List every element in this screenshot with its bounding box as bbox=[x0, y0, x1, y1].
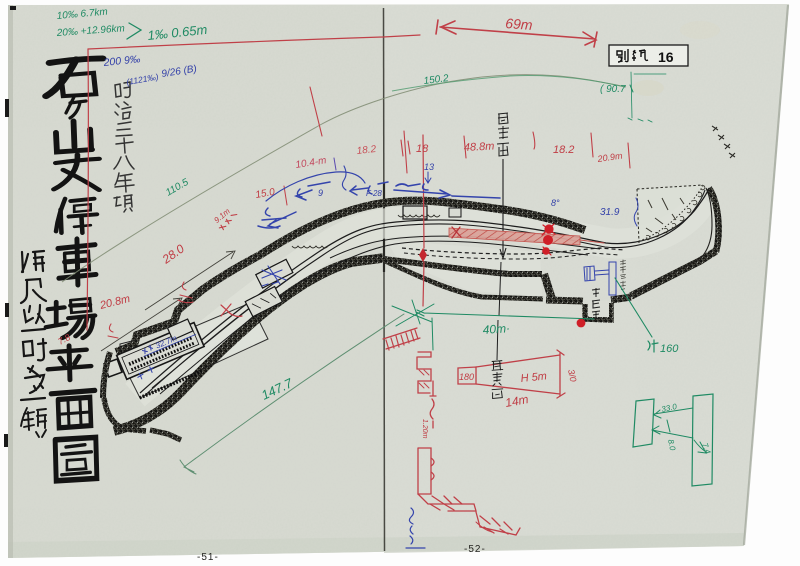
svg-text:40m·: 40m· bbox=[482, 321, 510, 337]
svg-text:-51-: -51- bbox=[197, 552, 219, 563]
svg-text:( 90.7: ( 90.7 bbox=[600, 84, 626, 95]
svg-text:18.2: 18.2 bbox=[553, 144, 574, 156]
svg-text:31.9: 31.9 bbox=[600, 207, 620, 218]
svg-text:16: 16 bbox=[658, 49, 674, 65]
svg-text:9: 9 bbox=[318, 188, 323, 198]
svg-text:18.2: 18.2 bbox=[356, 144, 377, 157]
svg-text:13: 13 bbox=[424, 162, 434, 172]
svg-text:160: 160 bbox=[660, 343, 679, 355]
svg-text:180: 180 bbox=[459, 372, 474, 382]
svg-text:8°: 8° bbox=[551, 198, 560, 208]
svg-text:-52-: -52- bbox=[464, 544, 486, 555]
svg-text:48.8m: 48.8m bbox=[464, 140, 495, 154]
svg-text:1.20m: 1.20m bbox=[421, 419, 428, 439]
svg-text:69m: 69m bbox=[505, 15, 534, 33]
svg-text:F 28: F 28 bbox=[366, 189, 382, 198]
